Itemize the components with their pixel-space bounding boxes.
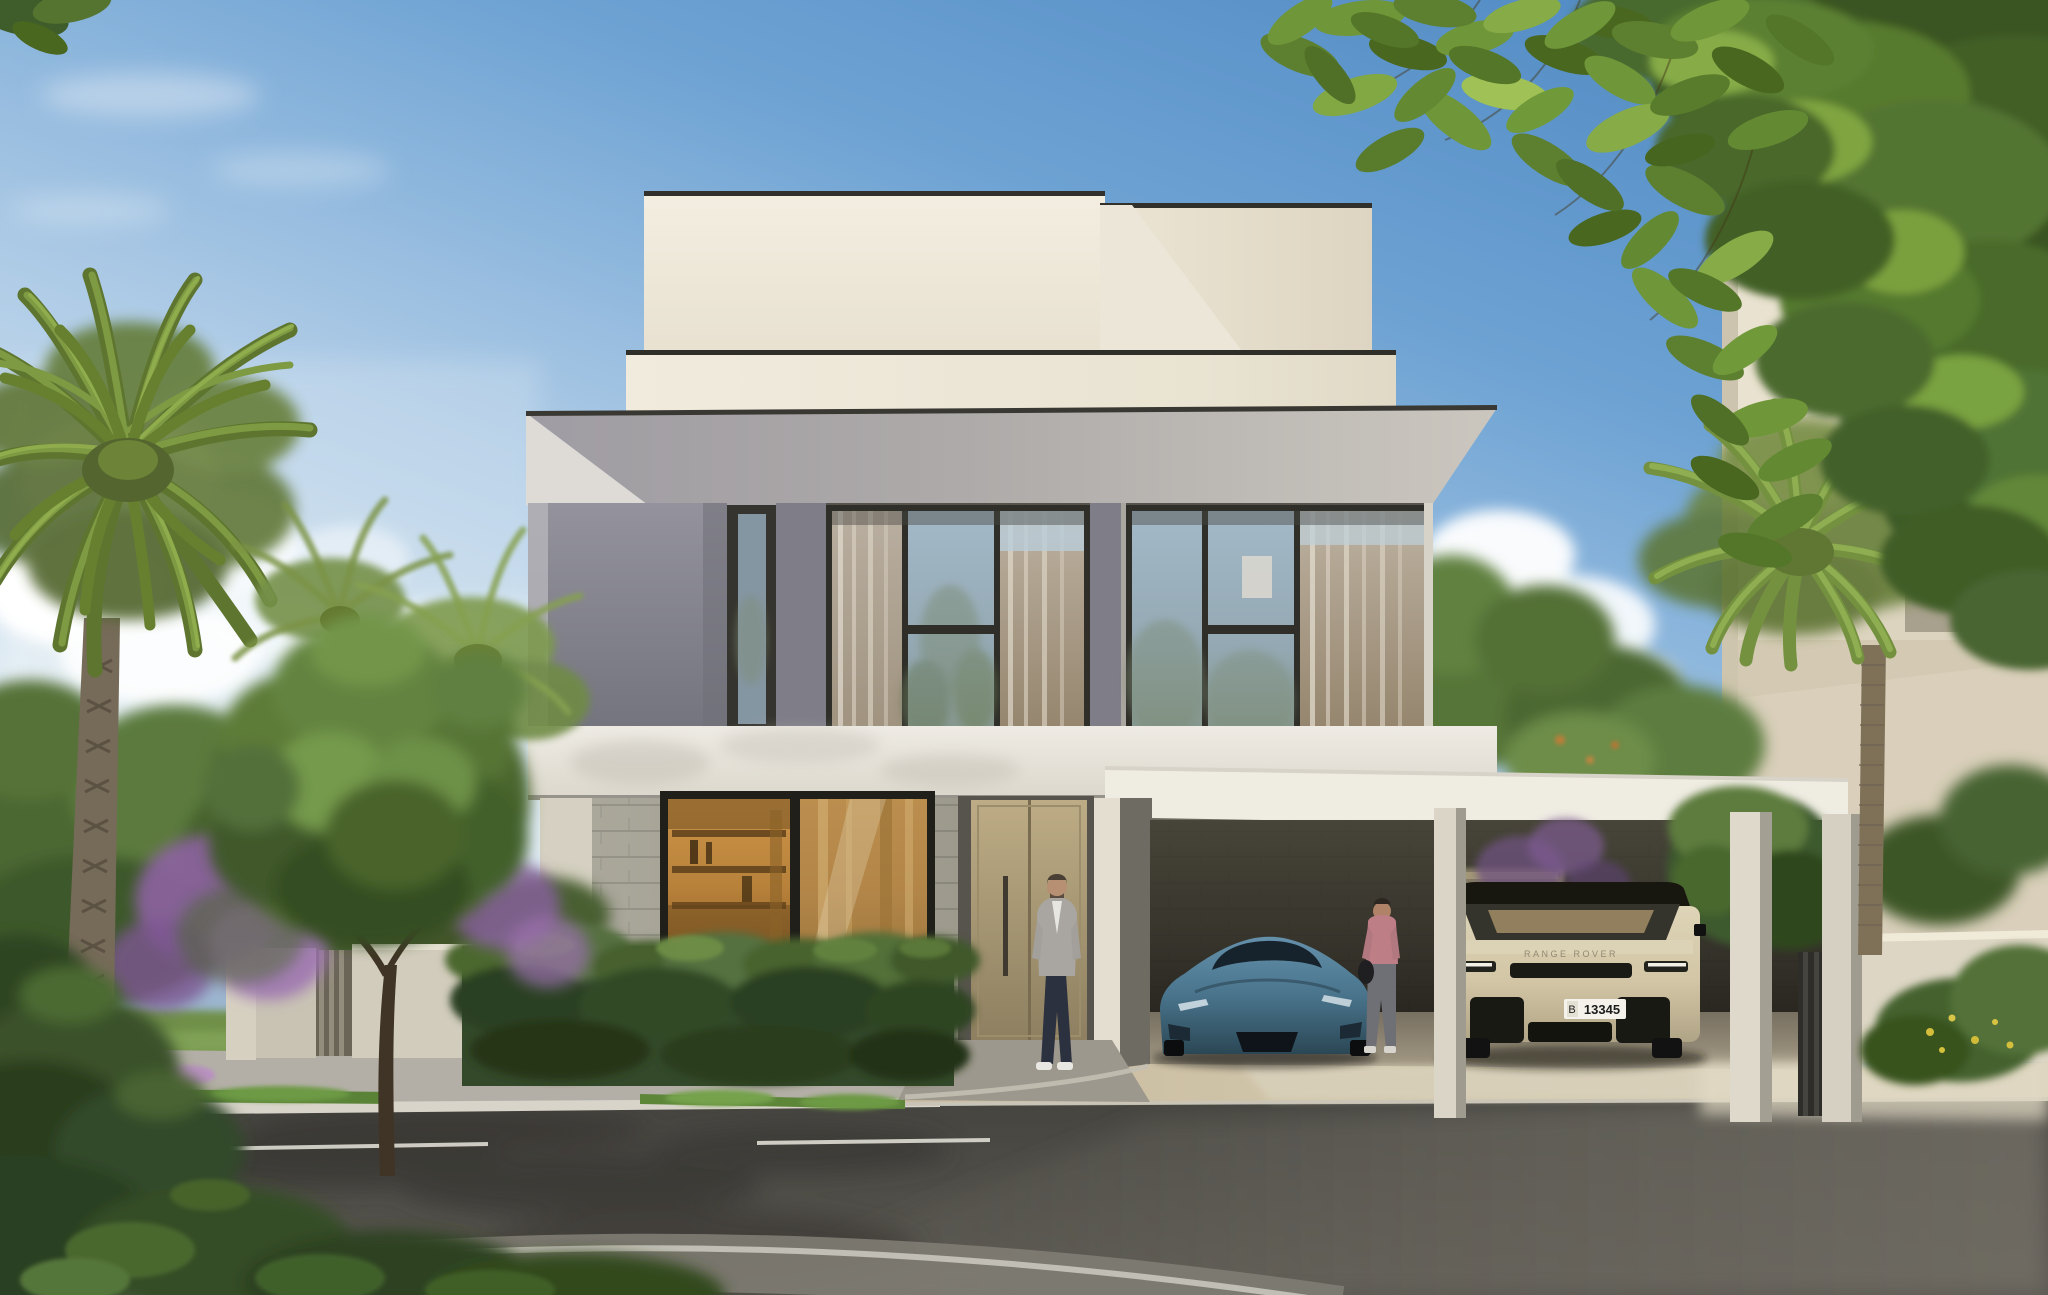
svg-text:13345: 13345 — [1584, 1002, 1620, 1017]
svg-text:B: B — [1568, 1004, 1575, 1016]
svg-text:RANGE ROVER: RANGE ROVER — [1524, 949, 1618, 959]
